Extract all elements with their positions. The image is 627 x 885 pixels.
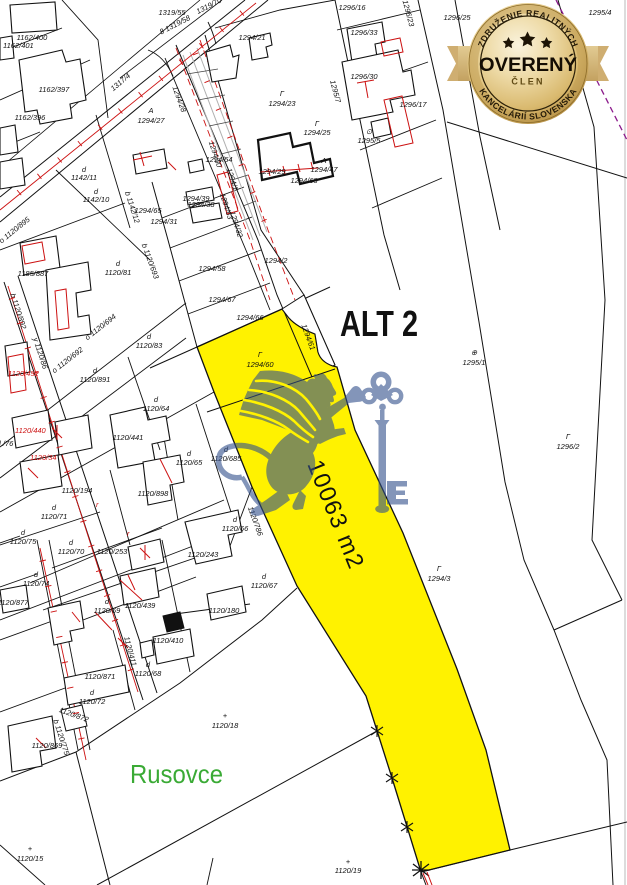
svg-text:Γ: Γ bbox=[315, 119, 320, 128]
svg-text:1294/38: 1294/38 bbox=[187, 200, 215, 209]
svg-text:Γ: Γ bbox=[566, 432, 571, 441]
svg-text:1296/16: 1296/16 bbox=[338, 3, 366, 12]
svg-text:1120/440: 1120/440 bbox=[15, 426, 47, 435]
svg-text:1294/25: 1294/25 bbox=[303, 128, 331, 137]
svg-text:1294/21: 1294/21 bbox=[238, 33, 265, 42]
svg-text:1120/243: 1120/243 bbox=[188, 550, 220, 559]
svg-text:1120/83: 1120/83 bbox=[136, 341, 163, 350]
svg-text:1120/69: 1120/69 bbox=[94, 606, 121, 615]
svg-text:1294/68: 1294/68 bbox=[290, 176, 318, 185]
svg-text:1120/871: 1120/871 bbox=[85, 672, 116, 681]
svg-text:Γ: Γ bbox=[280, 89, 285, 98]
svg-text:1294/66: 1294/66 bbox=[236, 313, 264, 322]
svg-text:A: A bbox=[320, 156, 326, 165]
svg-text:1294/3: 1294/3 bbox=[428, 574, 452, 583]
svg-text:1294/58: 1294/58 bbox=[198, 264, 226, 273]
svg-text:1120/253: 1120/253 bbox=[97, 547, 129, 556]
svg-text:1294/60: 1294/60 bbox=[246, 360, 274, 369]
svg-text:1120/68: 1120/68 bbox=[135, 669, 162, 678]
svg-text:1295/4: 1295/4 bbox=[589, 8, 612, 17]
svg-text:A: A bbox=[147, 106, 153, 115]
svg-text:+: + bbox=[223, 711, 228, 720]
svg-text:d /76: d /76 bbox=[0, 439, 14, 448]
svg-text:1120/67: 1120/67 bbox=[251, 581, 278, 590]
svg-text:1120/15: 1120/15 bbox=[17, 854, 44, 863]
svg-text:1120/439: 1120/439 bbox=[125, 601, 157, 610]
svg-text:1120/65: 1120/65 bbox=[176, 458, 203, 467]
svg-text:Γ: Γ bbox=[437, 564, 442, 573]
svg-text:1120/81: 1120/81 bbox=[105, 268, 132, 277]
svg-text:1294/27: 1294/27 bbox=[137, 116, 165, 125]
svg-text:⊙: ⊙ bbox=[366, 127, 373, 136]
svg-text:1120/19: 1120/19 bbox=[335, 866, 362, 875]
svg-text:1120/898: 1120/898 bbox=[138, 489, 170, 498]
svg-text:1296/30: 1296/30 bbox=[350, 72, 378, 81]
svg-text:Γ: Γ bbox=[258, 350, 263, 359]
svg-text:1142/10: 1142/10 bbox=[83, 195, 110, 204]
svg-text:1296/2: 1296/2 bbox=[557, 442, 581, 451]
svg-text:1120/34: 1120/34 bbox=[30, 453, 57, 462]
svg-text:1294/31: 1294/31 bbox=[150, 217, 177, 226]
svg-text:1295/1: 1295/1 bbox=[463, 358, 486, 367]
svg-text:1296/33: 1296/33 bbox=[350, 28, 378, 37]
svg-text:1162/401: 1162/401 bbox=[3, 41, 34, 50]
svg-text:1120/891: 1120/891 bbox=[80, 375, 111, 384]
svg-text:1142/11: 1142/11 bbox=[71, 173, 97, 182]
svg-text:1120/18: 1120/18 bbox=[212, 721, 239, 730]
svg-text:1120/75: 1120/75 bbox=[10, 537, 37, 546]
svg-text:1120/70: 1120/70 bbox=[58, 547, 85, 556]
svg-text:1296/25: 1296/25 bbox=[443, 13, 471, 22]
svg-text:1294/47: 1294/47 bbox=[310, 165, 338, 174]
svg-text:ČLEN: ČLEN bbox=[511, 76, 544, 87]
svg-text:1120/180: 1120/180 bbox=[209, 606, 241, 615]
svg-text:1120/877: 1120/877 bbox=[0, 598, 29, 607]
svg-text:1120/441: 1120/441 bbox=[113, 433, 144, 442]
svg-text:1185/887: 1185/887 bbox=[18, 269, 50, 278]
svg-text:1162/397: 1162/397 bbox=[39, 85, 71, 94]
svg-text:ALT 2: ALT 2 bbox=[340, 303, 418, 344]
svg-text:Rusovce: Rusovce bbox=[130, 759, 223, 789]
svg-text:1120/194: 1120/194 bbox=[62, 486, 93, 495]
svg-text:1295/5: 1295/5 bbox=[358, 136, 382, 145]
svg-text:1120/685: 1120/685 bbox=[211, 454, 243, 463]
svg-text:1294/23: 1294/23 bbox=[268, 99, 296, 108]
svg-text:⊕: ⊕ bbox=[471, 348, 478, 357]
svg-text:1294/29: 1294/29 bbox=[258, 167, 286, 176]
svg-text:1120/66: 1120/66 bbox=[222, 524, 249, 533]
svg-text:+: + bbox=[28, 844, 33, 853]
svg-text:OVERENÝ: OVERENÝ bbox=[479, 54, 577, 76]
svg-text:1120/64: 1120/64 bbox=[143, 404, 170, 413]
svg-text:1296/17: 1296/17 bbox=[399, 100, 427, 109]
svg-text:1120/410: 1120/410 bbox=[153, 636, 185, 645]
svg-text:1120/452: 1120/452 bbox=[8, 369, 40, 378]
svg-text:1120/71: 1120/71 bbox=[41, 512, 68, 521]
svg-text:1120/72: 1120/72 bbox=[79, 697, 106, 706]
svg-text:1294/2: 1294/2 bbox=[265, 256, 289, 265]
svg-text:+: + bbox=[346, 857, 351, 866]
svg-text:1294/67: 1294/67 bbox=[208, 295, 236, 304]
svg-text:1162/396: 1162/396 bbox=[15, 113, 47, 122]
